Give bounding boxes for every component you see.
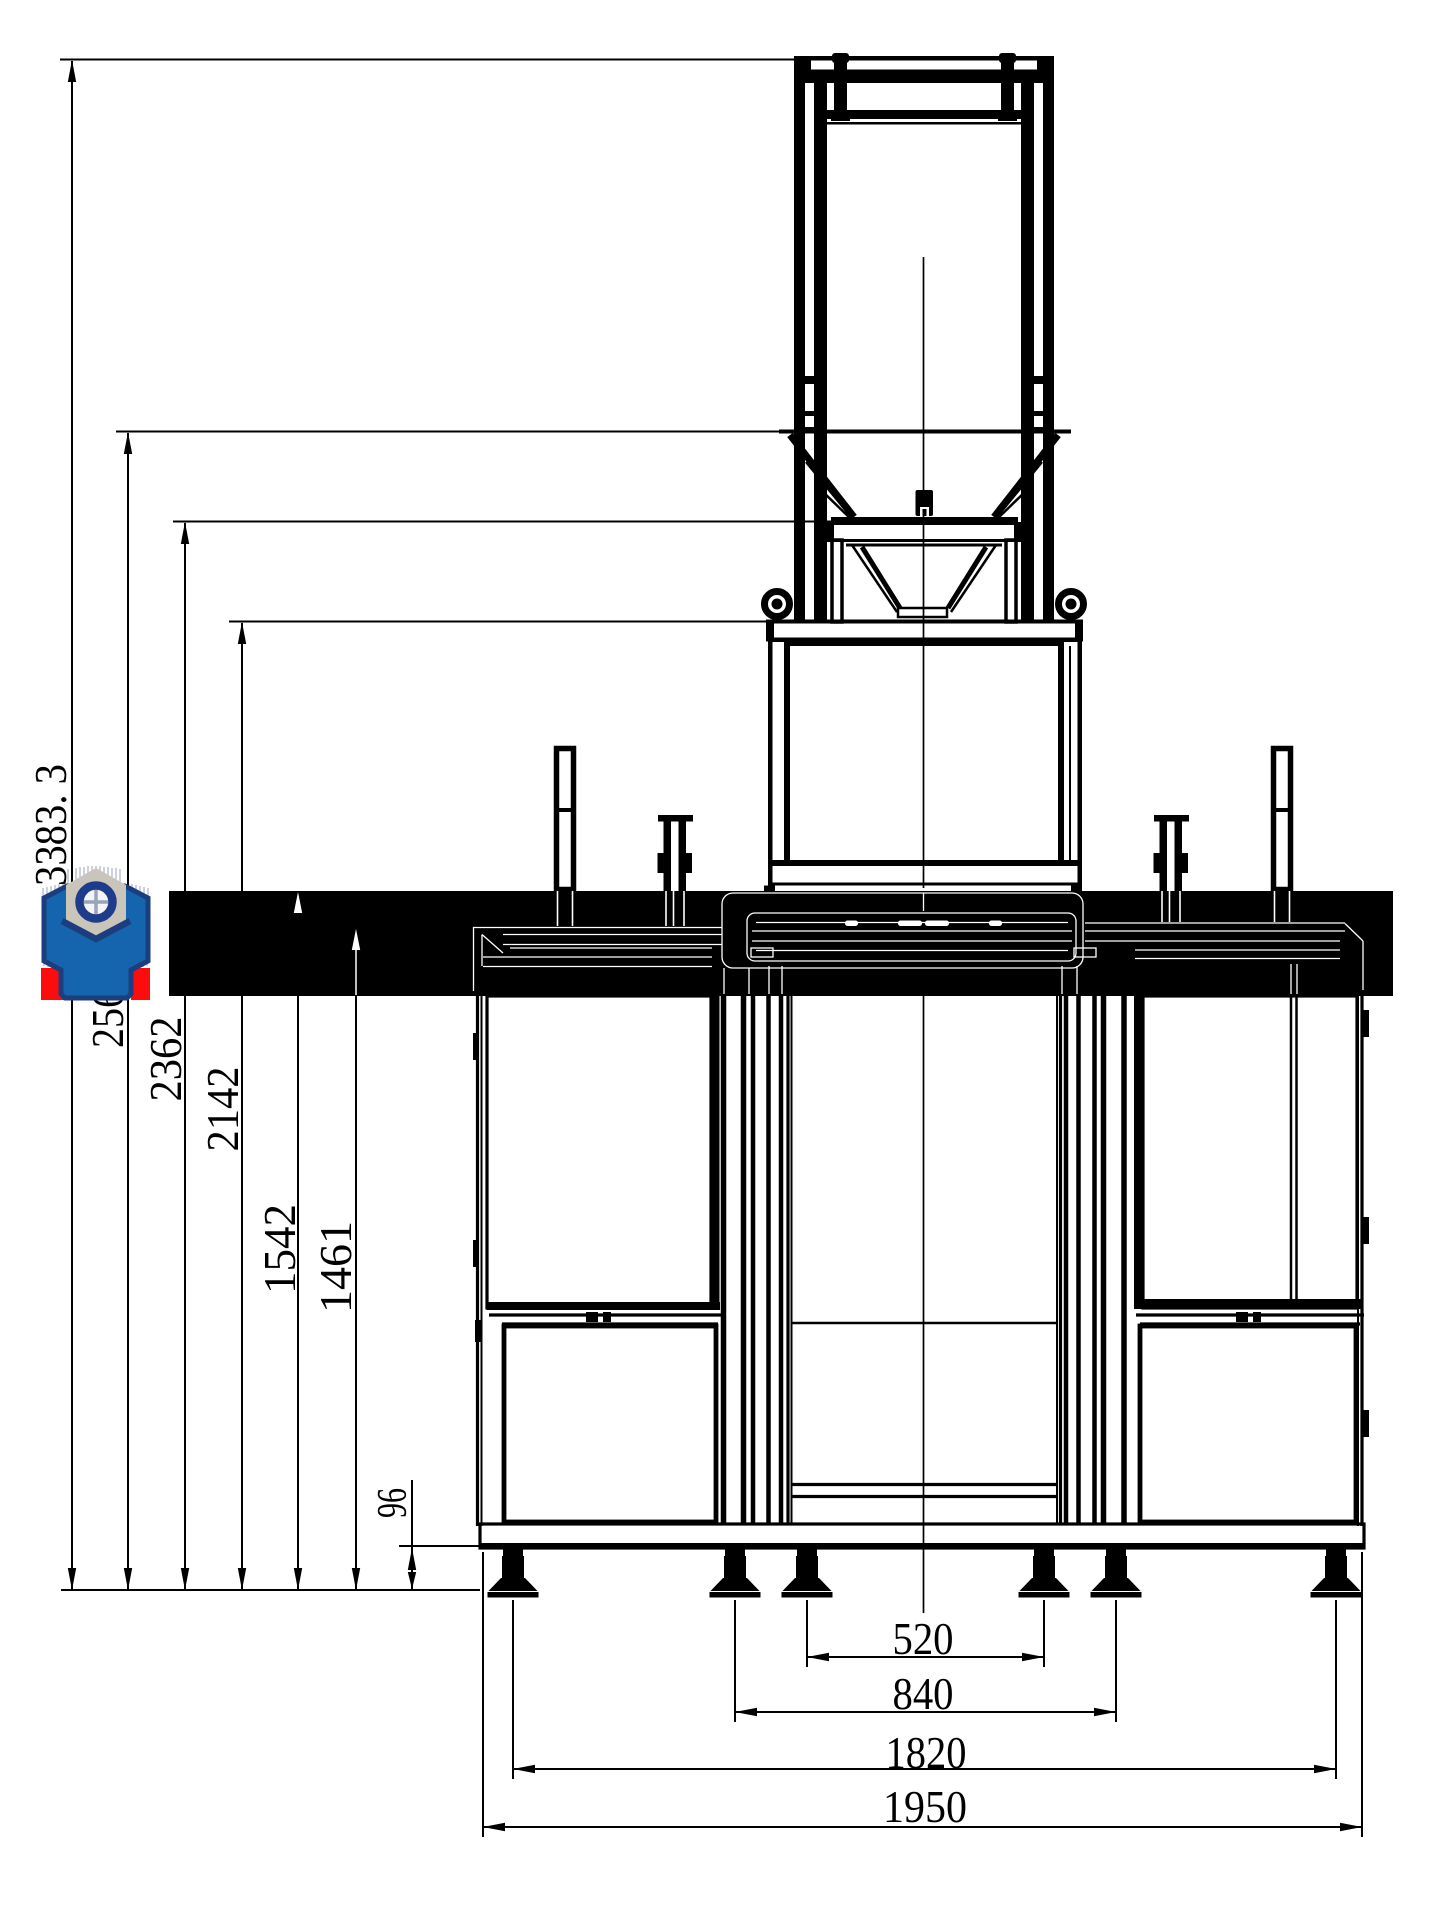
svg-text:1461: 1461 [310, 1221, 361, 1313]
svg-text:1820: 1820 [886, 1727, 967, 1778]
svg-text:840: 840 [893, 1668, 954, 1719]
svg-text:2142: 2142 [197, 1067, 248, 1152]
svg-text:520: 520 [893, 1613, 954, 1664]
svg-text:1542: 1542 [254, 1204, 305, 1294]
svg-text:1950: 1950 [883, 1781, 967, 1832]
svg-text:3383. 3: 3383. 3 [25, 764, 76, 886]
svg-text:2362: 2362 [140, 1017, 191, 1102]
svg-text:96: 96 [370, 1488, 416, 1518]
